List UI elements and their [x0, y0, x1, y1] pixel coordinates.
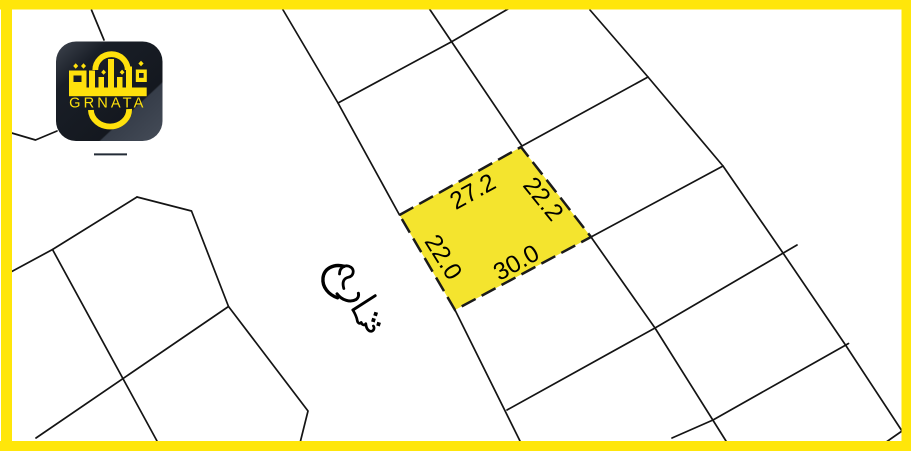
- svg-text:GRNATA: GRNATA: [69, 95, 146, 111]
